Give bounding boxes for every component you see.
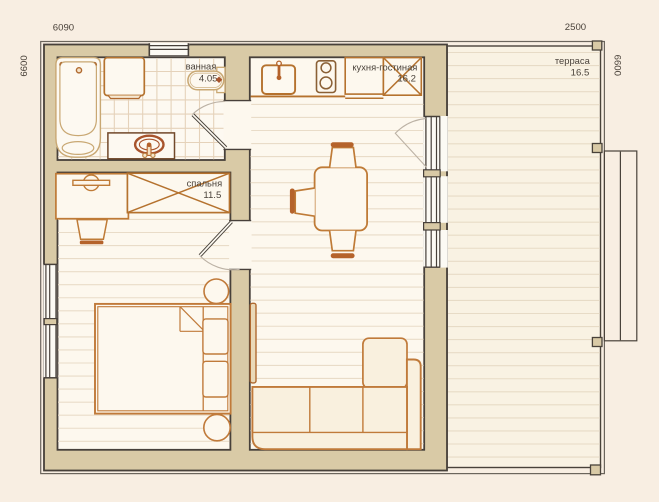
svg-text:11.5: 11.5 xyxy=(203,190,221,201)
svg-text:16.2: 16.2 xyxy=(397,74,416,85)
svg-text:ванная: ванная xyxy=(186,60,217,71)
svg-text:2500: 2500 xyxy=(565,22,586,33)
svg-text:спальня: спальня xyxy=(187,177,223,188)
svg-text:16.5: 16.5 xyxy=(571,67,590,78)
svg-text:6600: 6600 xyxy=(611,55,622,76)
svg-text:кухня-гостиная: кухня-гостиная xyxy=(352,62,417,73)
svg-text:6090: 6090 xyxy=(53,22,74,33)
svg-text:4.05: 4.05 xyxy=(199,74,218,85)
svg-text:6600: 6600 xyxy=(19,55,30,76)
svg-text:терраса: терраса xyxy=(555,55,591,66)
